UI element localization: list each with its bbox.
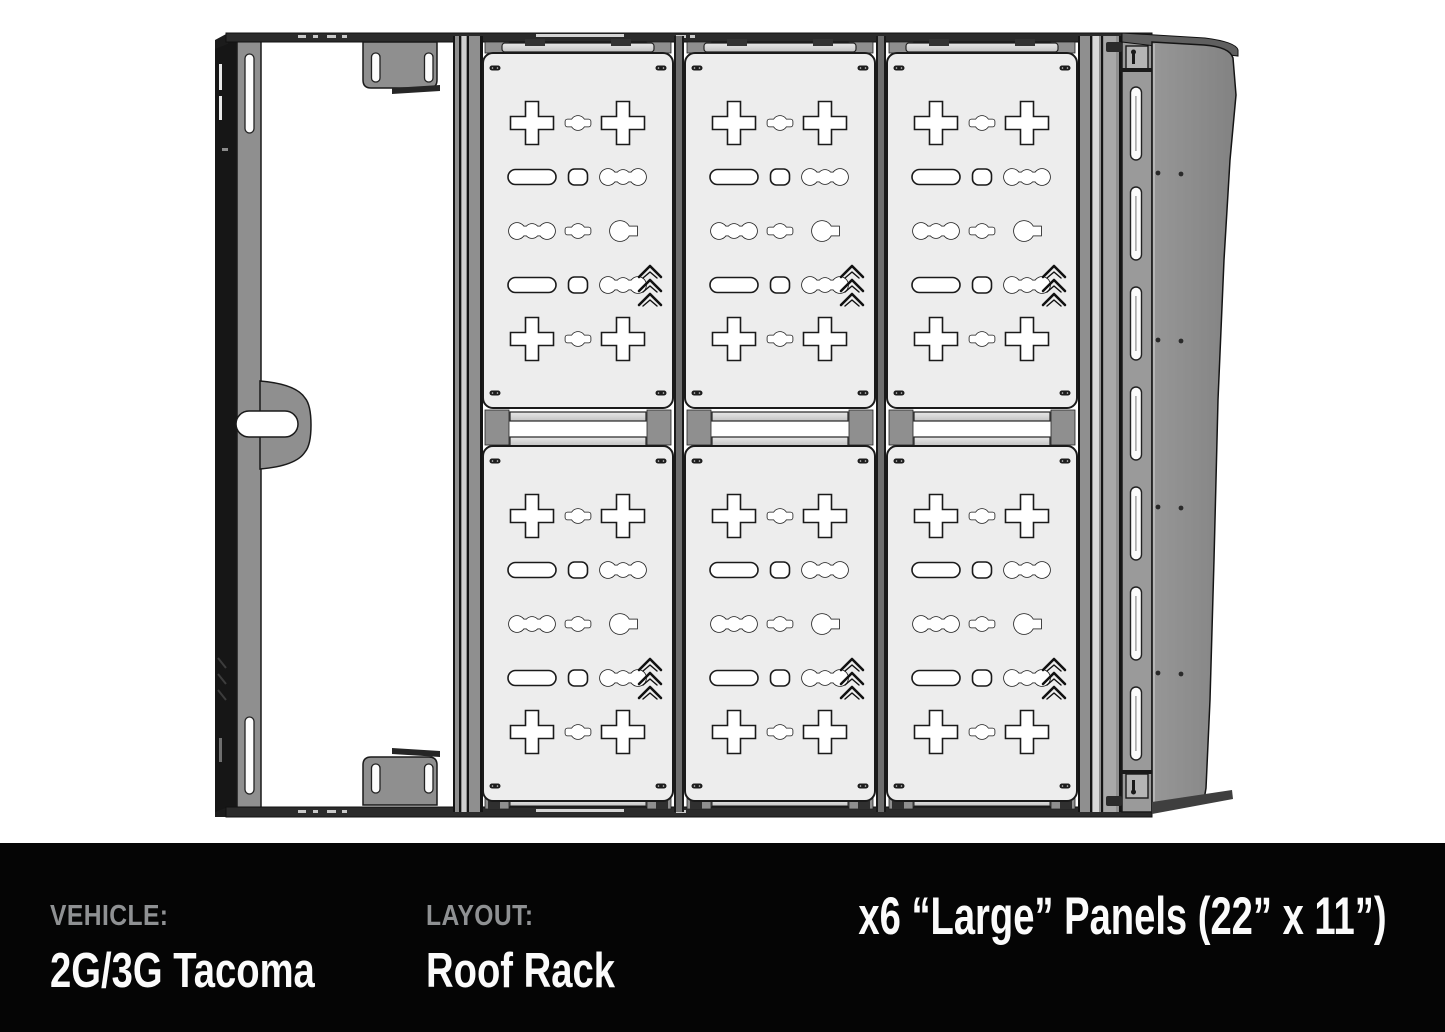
- panel-rivet: [656, 391, 667, 396]
- rail-slot: [1131, 287, 1142, 360]
- rail-slot: [1131, 87, 1142, 160]
- layout-value: Roof Rack: [426, 945, 615, 997]
- molle-panels-layer: [483, 53, 1077, 801]
- cutout-bone: [509, 616, 555, 632]
- panel-rivet: [692, 391, 703, 396]
- layout-caption-group: LAYOUT: Roof Rack: [426, 901, 668, 997]
- cutout-pill: [912, 278, 960, 293]
- molle-panel-row1-col1: [483, 53, 673, 408]
- triple-chevron-logo: [639, 659, 661, 699]
- triple-chevron-logo: [639, 266, 661, 306]
- panel-rivet: [692, 66, 703, 71]
- cutout-pill: [710, 170, 758, 185]
- panel-rivet: [692, 459, 703, 464]
- cutout-pill: [912, 170, 960, 185]
- left-edge-strip: [215, 33, 237, 817]
- panel-rivet: [894, 784, 905, 789]
- cutout-bone: [509, 223, 555, 239]
- layout-label: LAYOUT:: [426, 901, 632, 931]
- cutout-sqr: [771, 670, 790, 686]
- support-rail-left: [453, 36, 483, 812]
- cutout-pill: [710, 278, 758, 293]
- cutout-sqr: [973, 562, 992, 578]
- vehicle-caption-group: VEHICLE: 2G/3G Tacoma: [50, 901, 390, 997]
- panel-rivet: [858, 784, 869, 789]
- cutout-sqr: [973, 277, 992, 293]
- support-rail-mid-2: [876, 36, 886, 812]
- cutout-pill: [508, 278, 556, 293]
- cutout-bone: [711, 616, 757, 632]
- rail-slot: [1131, 487, 1142, 560]
- rear-mount-bracket: [363, 748, 440, 805]
- cutout-sqr: [569, 670, 588, 686]
- left-rail-slot-top: [245, 54, 254, 133]
- molle-panel-row1-col2: [685, 53, 875, 408]
- panel-rivet: [858, 391, 869, 396]
- panel-rivet: [1060, 784, 1071, 789]
- cutout-pill: [710, 671, 758, 686]
- triple-chevron-logo: [841, 659, 863, 699]
- panel-rivet: [692, 784, 703, 789]
- triple-chevron-logo: [1043, 266, 1065, 306]
- panels-note: x6 “Large” Panels (22” x 11”): [859, 889, 1387, 945]
- cutout-pill: [508, 563, 556, 578]
- cutout-pill: [710, 563, 758, 578]
- front-mount-bracket: [363, 42, 440, 94]
- cutout-pill: [912, 563, 960, 578]
- rail-slot: [1131, 187, 1142, 260]
- panel-rivet: [1060, 459, 1071, 464]
- cutout-bone: [600, 562, 646, 578]
- support-rail-right: [1078, 36, 1122, 812]
- caption-bar: VEHICLE: 2G/3G Tacoma LAYOUT: Roof Rack …: [0, 843, 1445, 1032]
- panel-rivet: [858, 459, 869, 464]
- rail-slot: [1131, 587, 1142, 660]
- cutout-bone: [711, 223, 757, 239]
- triple-chevron-logo: [1043, 659, 1065, 699]
- cutout-bone: [802, 562, 848, 578]
- panel-rivet: [490, 784, 501, 789]
- cutout-bone: [913, 223, 959, 239]
- cutout-bone: [1004, 562, 1050, 578]
- panel-rivet: [858, 66, 869, 71]
- cutout-bone: [913, 616, 959, 632]
- left-rail-tab-slot: [236, 411, 298, 437]
- triple-chevron-logo: [841, 266, 863, 306]
- cutout-sqr: [771, 277, 790, 293]
- cutout-sqr: [569, 277, 588, 293]
- panel-rivet: [490, 66, 501, 71]
- roof-rack-top-view-diagram: [0, 0, 1445, 843]
- cutout-sqr: [569, 169, 588, 185]
- panel-rivet: [490, 391, 501, 396]
- vehicle-value: 2G/3G Tacoma: [50, 945, 315, 997]
- vehicle-label: VEHICLE:: [50, 901, 339, 931]
- panel-rivet: [656, 459, 667, 464]
- panel-rivet: [656, 784, 667, 789]
- cutout-bone: [600, 169, 646, 185]
- molle-panel-row2-col2: [685, 446, 875, 801]
- left-rail-slot-bottom: [245, 717, 254, 794]
- panel-rivet: [490, 459, 501, 464]
- panel-rivet: [656, 66, 667, 71]
- molle-panel-row2-col3: [887, 446, 1077, 801]
- cutout-bone: [802, 169, 848, 185]
- rail-slot: [1131, 687, 1142, 760]
- panel-rivet: [894, 391, 905, 396]
- panel-rivet: [894, 459, 905, 464]
- panel-rivet: [1060, 66, 1071, 71]
- support-rail-mid-1: [674, 36, 684, 812]
- cutout-pill: [508, 170, 556, 185]
- cutout-bone: [1004, 169, 1050, 185]
- cutout-sqr: [771, 169, 790, 185]
- molle-panel-row2-col1: [483, 446, 673, 801]
- left-side-rail: [236, 40, 311, 812]
- panel-rivet: [1060, 391, 1071, 396]
- screenshot-root: VEHICLE: 2G/3G Tacoma LAYOUT: Roof Rack …: [0, 0, 1445, 1032]
- cutout-sqr: [771, 562, 790, 578]
- top-frame-bar: [226, 33, 1152, 42]
- cutout-pill: [508, 671, 556, 686]
- molle-panel-row1-col3: [887, 53, 1077, 408]
- cutout-sqr: [569, 562, 588, 578]
- cutout-sqr: [973, 670, 992, 686]
- cutout-sqr: [973, 169, 992, 185]
- rail-slot: [1131, 387, 1142, 460]
- panel-rivet: [894, 66, 905, 71]
- cutout-pill: [912, 671, 960, 686]
- diagram-area: [0, 0, 1445, 843]
